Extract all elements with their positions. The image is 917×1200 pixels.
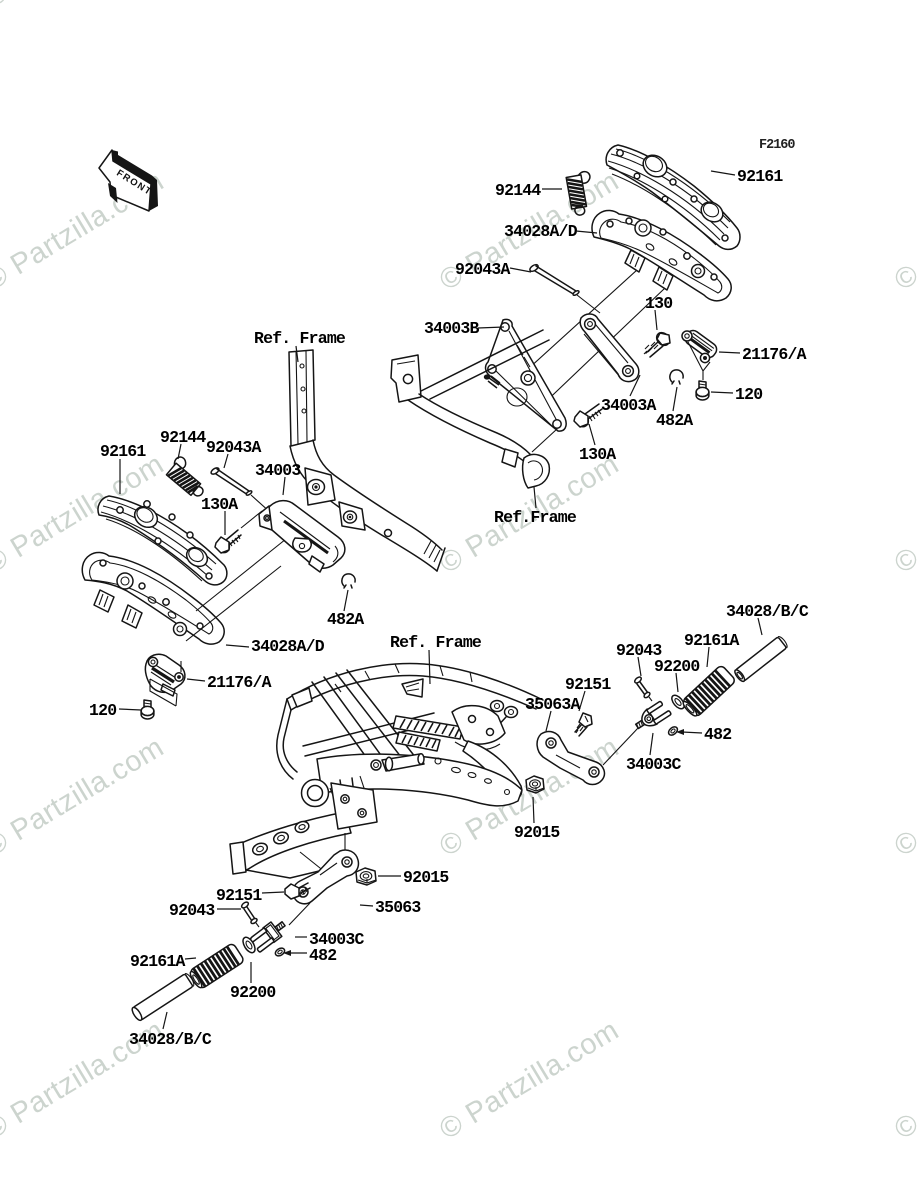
svg-text:35063A: 35063A <box>525 695 581 714</box>
svg-text:Ref.Frame: Ref.Frame <box>494 508 577 527</box>
svg-text:34003C: 34003C <box>626 755 682 774</box>
svg-text:120: 120 <box>89 701 116 720</box>
svg-text:34028A/D: 34028A/D <box>504 222 578 241</box>
svg-text:92144: 92144 <box>495 181 541 200</box>
svg-text:482A: 482A <box>656 411 693 430</box>
svg-text:92144: 92144 <box>160 428 206 447</box>
svg-text:130: 130 <box>645 294 672 313</box>
svg-text:Ref. Frame: Ref. Frame <box>390 633 482 652</box>
svg-text:34028/B/C: 34028/B/C <box>726 602 809 621</box>
svg-text:34003A: 34003A <box>601 396 657 415</box>
svg-text:482: 482 <box>309 946 336 965</box>
svg-text:92200: 92200 <box>654 657 700 676</box>
svg-text:92161: 92161 <box>100 442 146 461</box>
svg-text:92015: 92015 <box>403 868 449 887</box>
svg-text:92043A: 92043A <box>455 260 511 279</box>
svg-text:130A: 130A <box>579 445 616 464</box>
svg-text:92015: 92015 <box>514 823 560 842</box>
svg-text:34003B: 34003B <box>424 319 480 338</box>
svg-text:92161A: 92161A <box>684 631 740 650</box>
svg-text:120: 120 <box>735 385 762 404</box>
svg-text:92043A: 92043A <box>206 438 262 457</box>
svg-text:92161: 92161 <box>737 167 783 186</box>
svg-text:92200: 92200 <box>230 983 276 1002</box>
svg-text:92043: 92043 <box>169 901 215 920</box>
svg-text:92161A: 92161A <box>130 952 186 971</box>
svg-text:482: 482 <box>704 725 731 744</box>
svg-text:F2160: F2160 <box>759 138 795 153</box>
svg-text:21176/A: 21176/A <box>207 673 272 692</box>
svg-text:130A: 130A <box>201 495 238 514</box>
svg-text:482A: 482A <box>327 610 364 629</box>
svg-text:34028/B/C: 34028/B/C <box>129 1030 212 1049</box>
svg-text:21176/A: 21176/A <box>742 345 807 364</box>
svg-text:34028A/D: 34028A/D <box>251 637 325 656</box>
svg-text:34003: 34003 <box>255 461 301 480</box>
svg-text:Ref. Frame: Ref. Frame <box>254 329 346 348</box>
svg-text:92151: 92151 <box>216 886 262 905</box>
svg-text:35063: 35063 <box>375 898 421 917</box>
svg-text:92151: 92151 <box>565 675 611 694</box>
